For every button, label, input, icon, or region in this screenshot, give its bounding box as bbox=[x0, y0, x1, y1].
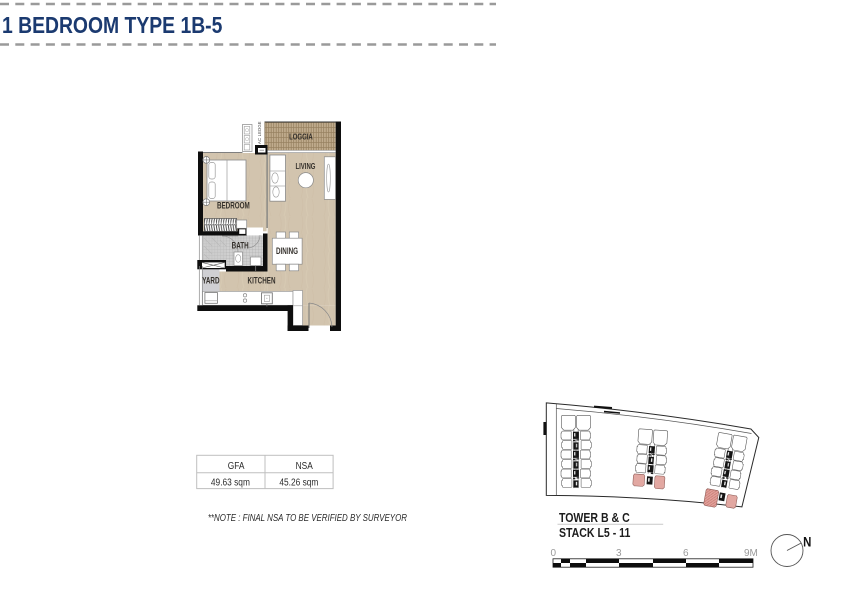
svg-text:BEDROOM: BEDROOM bbox=[217, 200, 250, 210]
svg-text:LIVING: LIVING bbox=[295, 161, 315, 171]
svg-text:BATH: BATH bbox=[232, 240, 249, 250]
svg-text:45.26 sqm: 45.26 sqm bbox=[279, 477, 318, 488]
svg-text:STACK L5 - 11: STACK L5 - 11 bbox=[559, 527, 631, 540]
svg-text:1 BEDROOM TYPE 1B-5: 1 BEDROOM TYPE 1B-5 bbox=[2, 12, 222, 38]
svg-text:LOGGIA: LOGGIA bbox=[289, 131, 313, 141]
svg-text:TOWER B & C: TOWER B & C bbox=[559, 512, 630, 525]
svg-text:NSA: NSA bbox=[296, 460, 314, 471]
svg-text:3: 3 bbox=[616, 548, 622, 559]
svg-text:49.63 sqm: 49.63 sqm bbox=[211, 477, 250, 488]
svg-text:9M: 9M bbox=[744, 548, 758, 559]
svg-text:AC LEDGE: AC LEDGE bbox=[257, 121, 262, 144]
svg-text:GFA: GFA bbox=[228, 460, 245, 471]
svg-text:0: 0 bbox=[551, 548, 557, 559]
svg-text:KITCHEN: KITCHEN bbox=[248, 275, 276, 285]
svg-text:N: N bbox=[803, 535, 811, 550]
svg-text:DINING: DINING bbox=[276, 246, 298, 256]
svg-text:6: 6 bbox=[683, 548, 689, 559]
svg-text:YARD: YARD bbox=[202, 275, 220, 285]
svg-text:**NOTE : FINAL NSA TO BE VERIF: **NOTE : FINAL NSA TO BE VERIFIED BY SUR… bbox=[208, 512, 407, 523]
